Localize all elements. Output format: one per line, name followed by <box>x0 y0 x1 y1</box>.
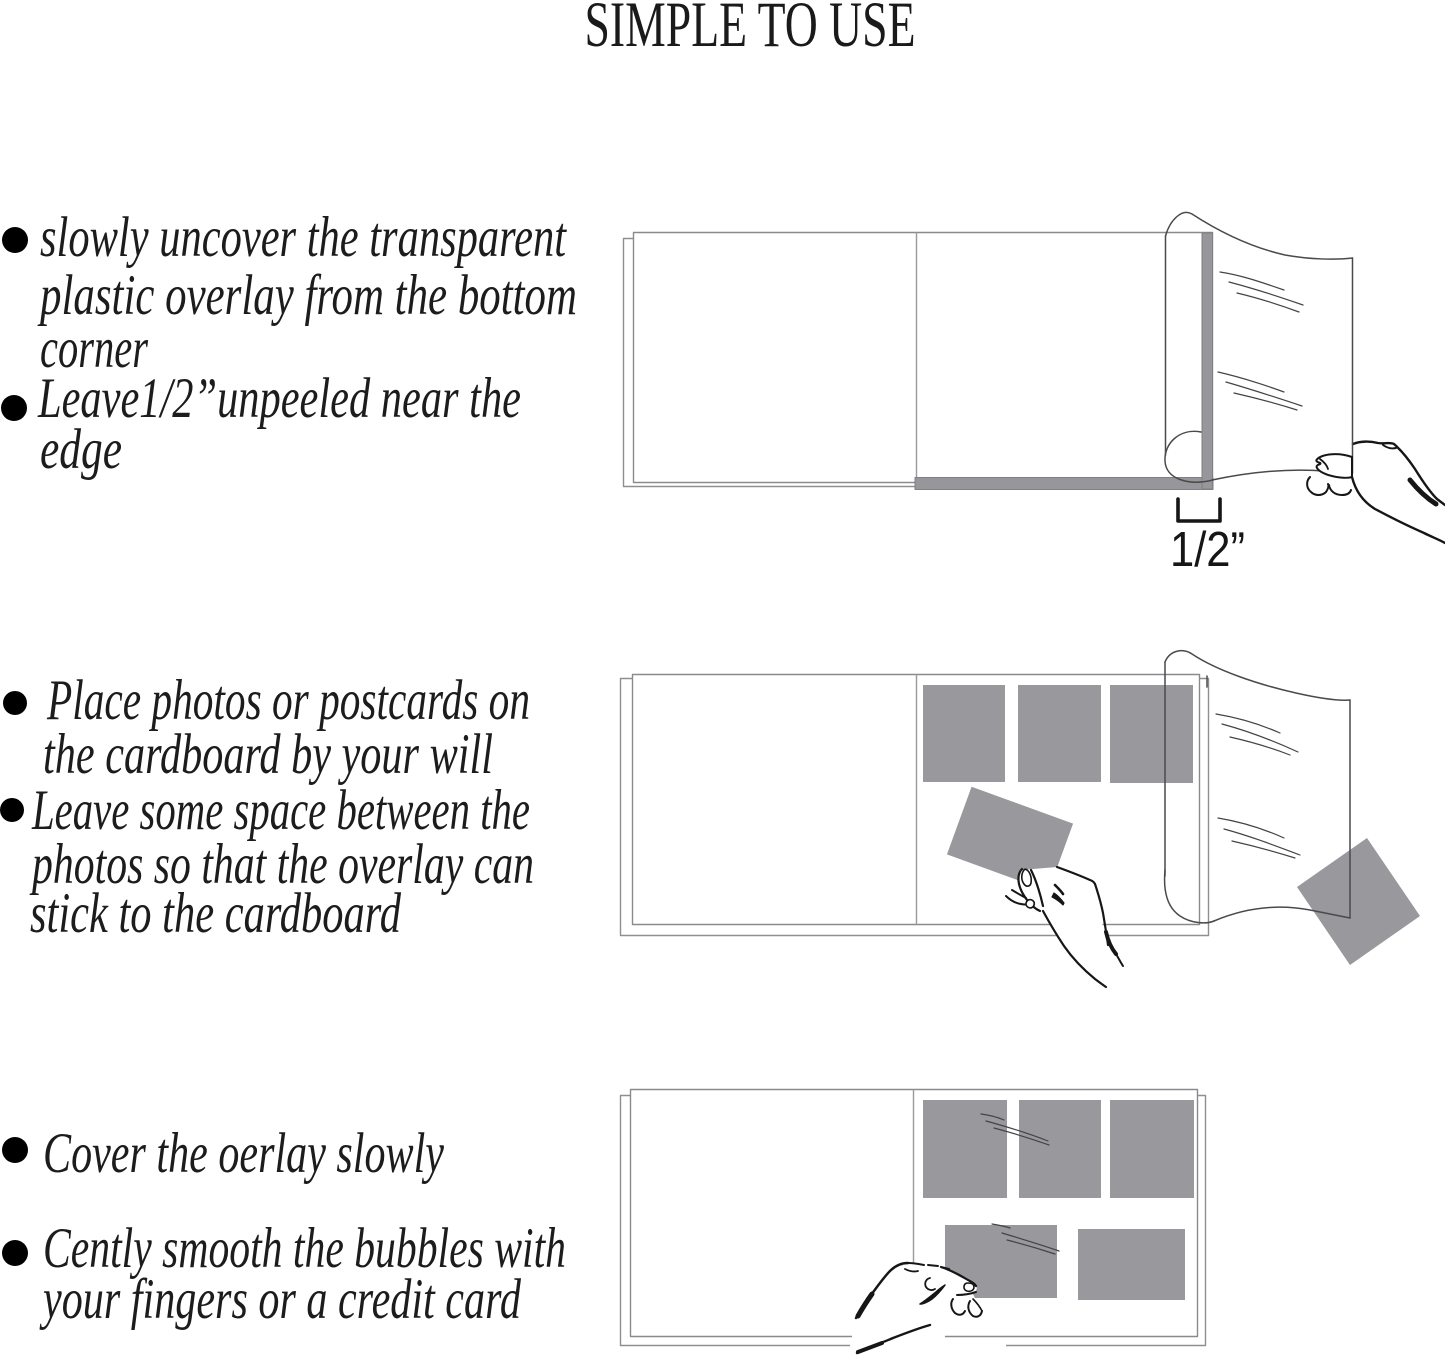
svg-text:SIMPLE TO USE: SIMPLE TO USE <box>585 0 916 61</box>
svg-text:Cover the oerlay slowly: Cover the oerlay slowly <box>43 1122 445 1185</box>
svg-text:edge: edge <box>40 418 122 481</box>
svg-text:your fingers or a credit card: your fingers or a credit card <box>39 1268 521 1331</box>
svg-text:the cardboard by your will: the cardboard by your will <box>43 723 493 786</box>
svg-text:stick to the cardboard: stick to the cardboard <box>30 882 401 945</box>
svg-text:slowly uncover the transparent: slowly uncover the transparent <box>40 206 567 269</box>
svg-text:1/2”: 1/2” <box>1170 523 1245 577</box>
